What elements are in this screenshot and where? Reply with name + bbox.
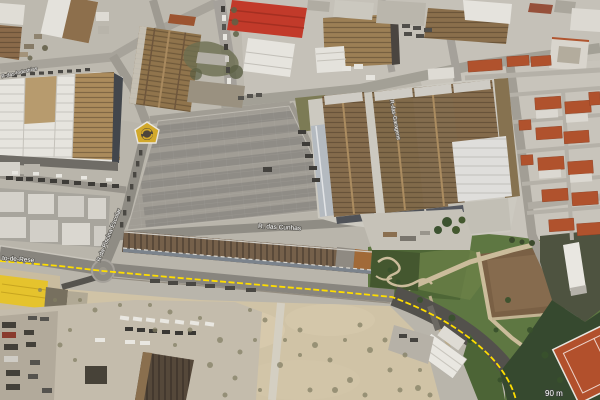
svg-text:90 m: 90 m — [545, 389, 563, 398]
